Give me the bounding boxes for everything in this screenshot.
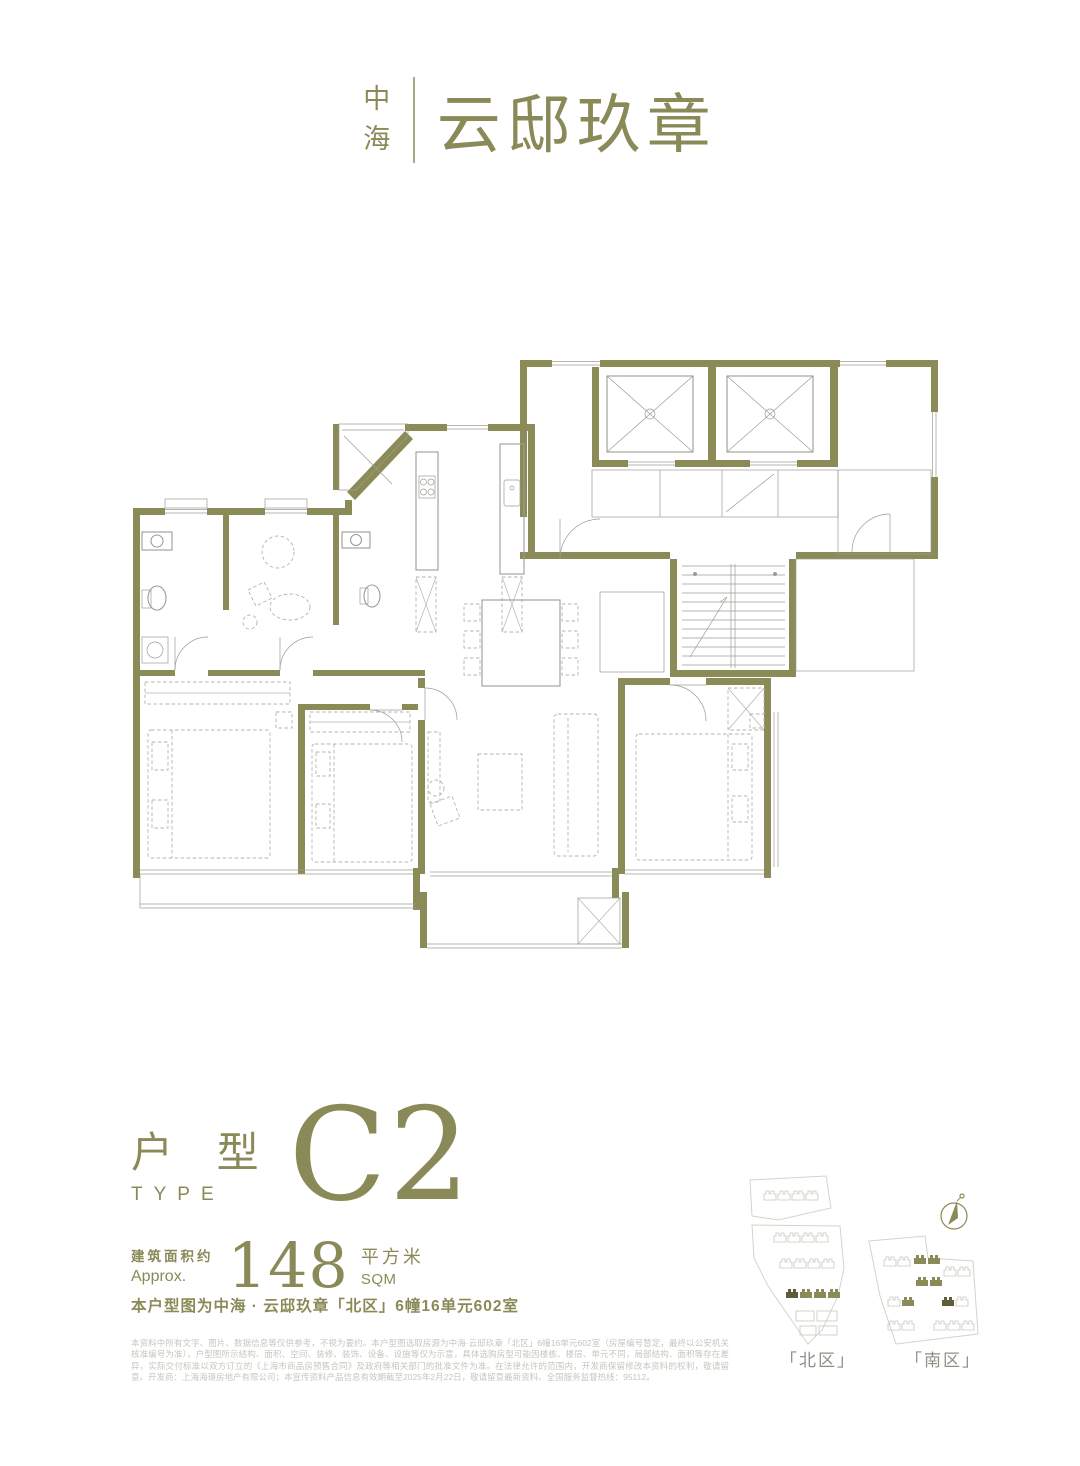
type-label-en: TYPE [131,1184,275,1206]
unit-description: 本户型图为中海 · 云邸玖章「北区」6幢16单元602室 [131,1294,519,1316]
kitchen [345,424,535,632]
stove-icon [419,476,435,498]
elevator-lobby [520,360,938,559]
closet [600,592,664,672]
toilet-icon-2 [342,532,380,607]
floor-plan-image [130,352,940,952]
north-site-plan: 「北区」 [750,1176,856,1370]
bedrooms-living [133,678,778,948]
entry-door-arc [852,514,890,552]
area-unit-en: SQM [361,1271,424,1288]
site-map: 「北区」 「南区」 [738,1168,1058,1398]
brand-char-1: 中 [363,80,391,121]
area-unit-cn: 平方米 [361,1243,424,1269]
brand-char-2: 海 [363,120,391,161]
type-block: 户 型 TYPE C2 [131,1106,472,1206]
lower-balcony [420,892,629,948]
floor-plan-poster: 中 海 云邸玖章 [0,0,1080,1466]
study-furniture [243,536,310,629]
bed-icon-2 [312,744,412,862]
sink-icon [504,480,520,506]
elevator-icon [592,367,838,467]
sofa-icon [428,714,598,856]
brand-logo: 中 海 云邸玖章 [0,74,1080,166]
area-label-en: Approx. [131,1268,214,1286]
bed-icon-master [636,714,764,860]
north-zone-label: 「北区」 [780,1351,856,1370]
stairs-icon [670,559,914,677]
area-value: 148 [228,1238,349,1294]
logo-divider [413,77,415,163]
highlighted-building [786,1289,798,1298]
disclaimer-text: 本资料中所有文字、图片、数据信息等仅供参考，不视为要约。本户型图选取房源为中海·… [131,1338,729,1384]
toilet-icon [142,532,172,663]
bed-icon-1 [148,712,292,858]
type-code: C2 [289,1106,472,1206]
area-block: 建筑面积约 Approx. 148 平方米 SQM [131,1238,424,1294]
brand-name-stacked: 中 海 [363,80,391,161]
south-site-plan: 「南区」 [869,1236,981,1370]
area-label-cn: 建筑面积约 [131,1245,214,1265]
type-label-cn: 户 型 [131,1132,275,1174]
bath-study-block [133,499,425,678]
south-zone-label: 「南区」 [905,1351,981,1370]
compass-icon [941,1194,967,1229]
dining-table-icon [464,600,578,686]
project-name: 云邸玖章 [437,74,717,166]
